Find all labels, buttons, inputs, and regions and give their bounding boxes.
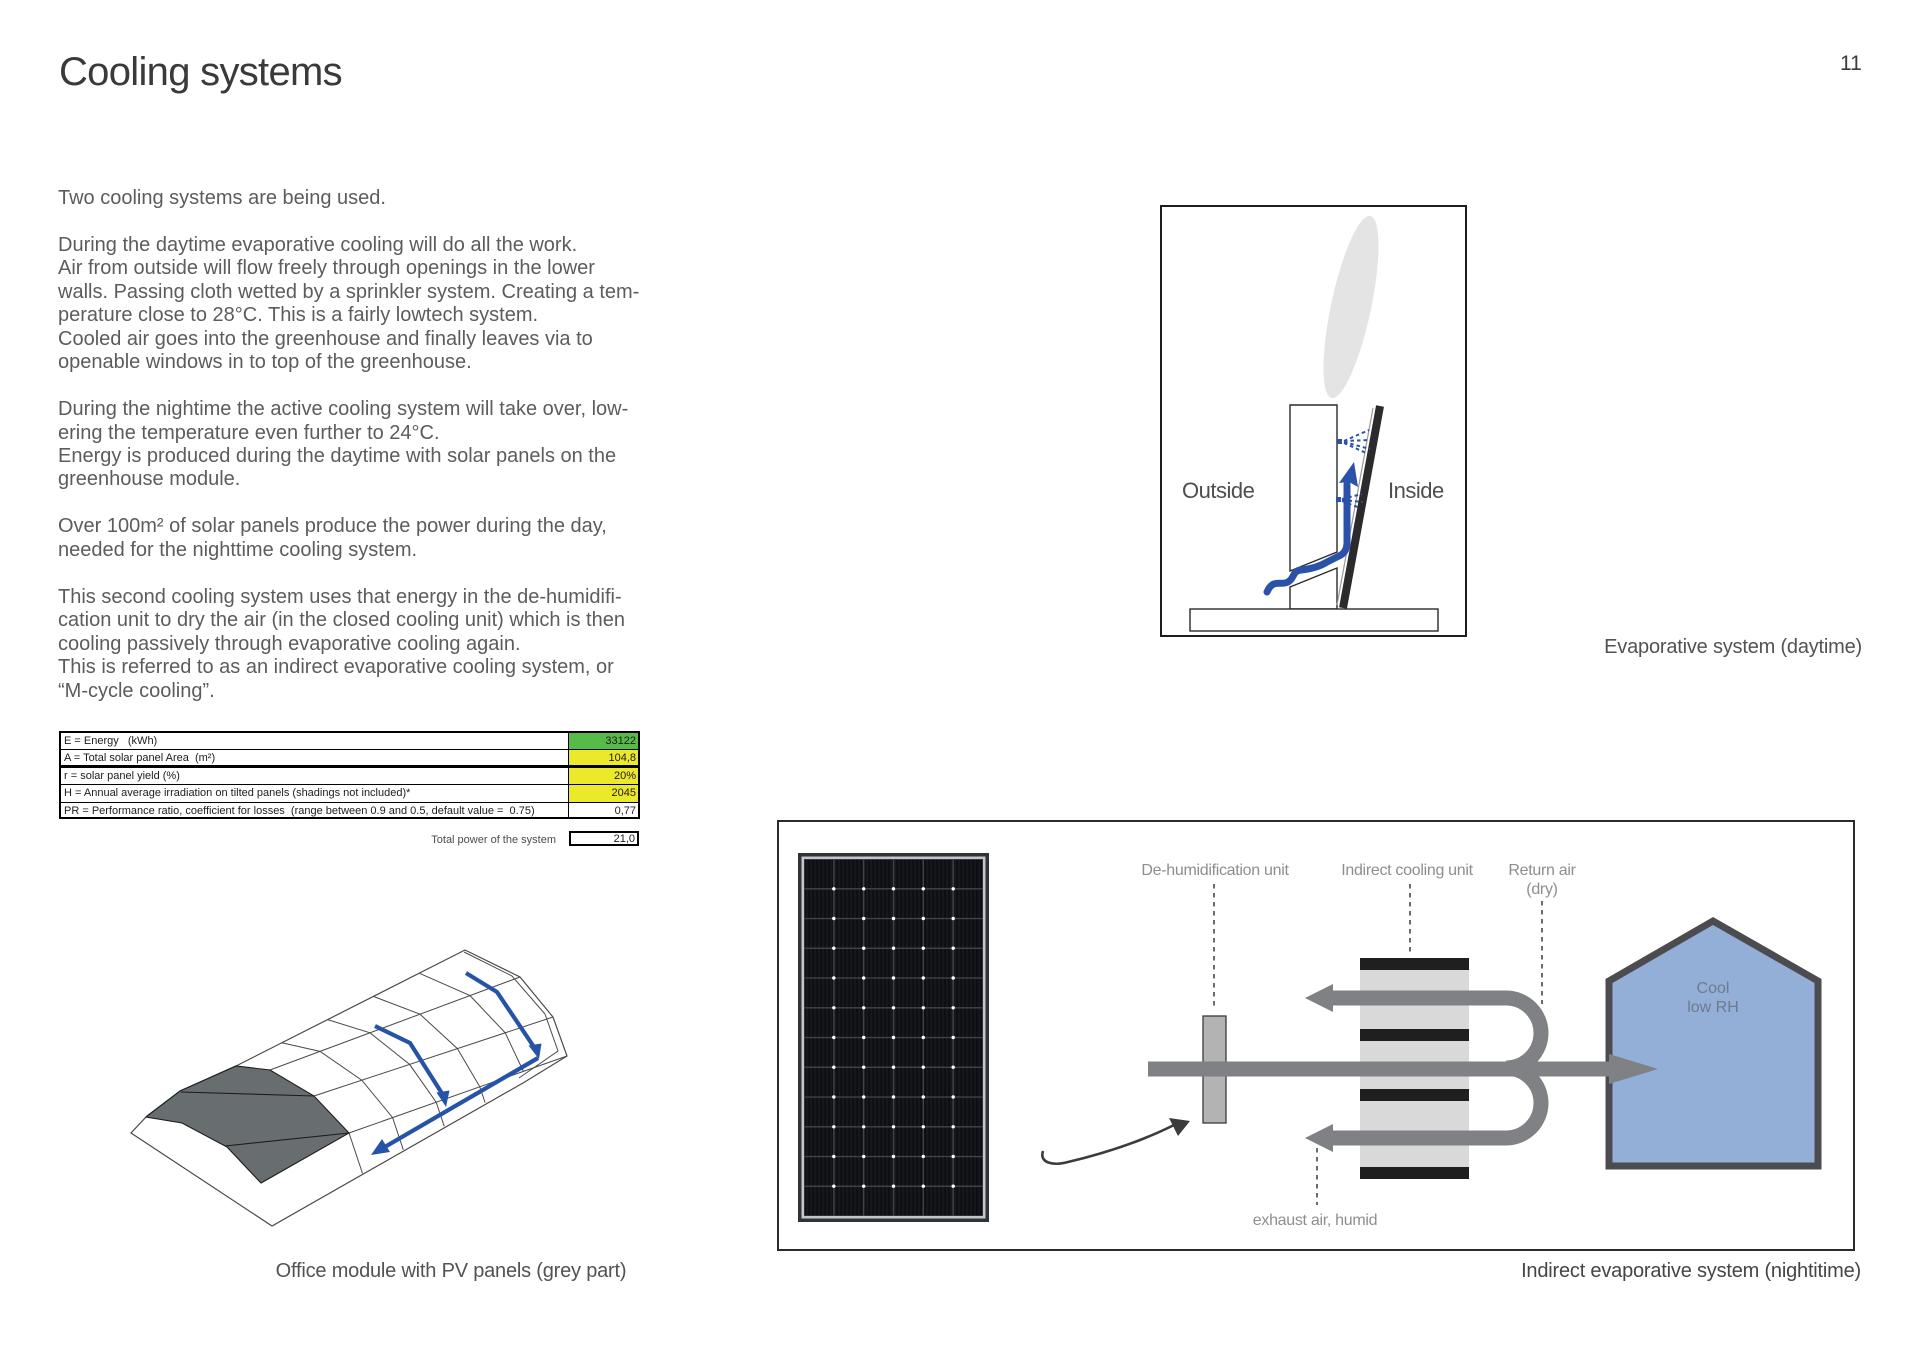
svg-text:low RH: low RH	[1687, 999, 1739, 1016]
svg-text:De-humidification unit: De-humidification unit	[1141, 862, 1289, 879]
svg-text:Return air: Return air	[1508, 862, 1576, 879]
svg-text:Outside: Outside	[1182, 478, 1255, 503]
svg-text:Inside: Inside	[1388, 478, 1444, 503]
svg-text:Cool: Cool	[1697, 980, 1730, 997]
svg-text:exhaust air, humid: exhaust air, humid	[1253, 1212, 1377, 1229]
svg-text:Indirect cooling unit: Indirect cooling unit	[1341, 862, 1473, 879]
svg-text:(dry): (dry)	[1526, 881, 1557, 898]
